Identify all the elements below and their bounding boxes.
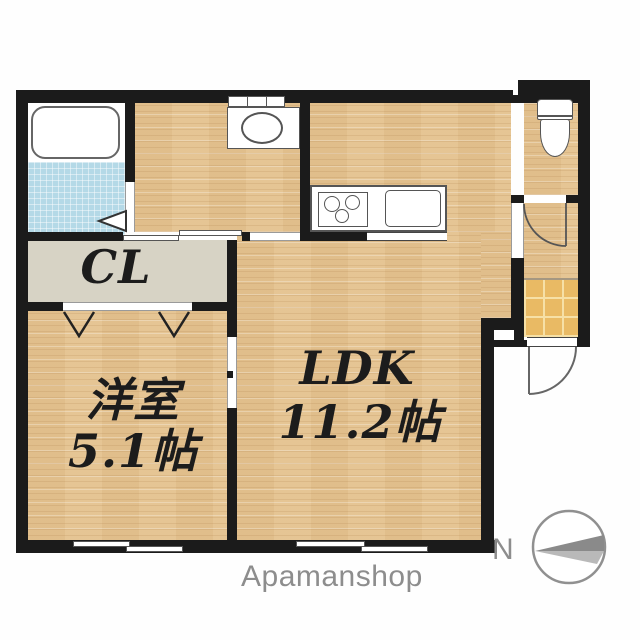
washroom-window-shelf [228,96,285,107]
toilet-door-opening [526,195,566,203]
compass-needle-dark [535,535,604,551]
wall-segment [192,302,227,311]
brand-label: Apamanshop [241,560,423,594]
ldk-window [361,546,428,552]
shelf-divider [266,96,267,107]
wall-segment [125,92,135,182]
ldk-floor-east [481,232,511,318]
entrance-tile-floor [524,280,578,337]
wall-segment [481,318,494,553]
north-label: N [492,533,514,567]
entrance-door-sill [527,337,577,347]
entrance-step-line [524,278,578,280]
compass [533,511,605,583]
wall-segment [300,232,367,241]
wall-segment [227,240,237,302]
kitchen-counter-front [367,232,447,241]
room-label-closet: CL [81,240,152,294]
kitchen-sink [385,190,441,227]
room-size-ldk: 11.2帖 [278,386,441,452]
hallway-ldk-sliding-door [511,203,524,258]
wall-segment [494,340,527,347]
compass-needle-light [535,551,604,564]
washroom-ldk-sliding-door [250,232,300,241]
shelf-divider [247,96,248,107]
washbasin-bowl [241,112,283,144]
wall-segment [566,195,578,203]
wall-segment [28,302,63,311]
bathroom-door-opening [125,182,135,232]
wall-segment [300,92,310,241]
floorplan: LDK 11.2帖 洋室 5.1帖 CL N Apamanshop [0,0,640,640]
washroom-sliding-door-pane [179,230,242,236]
hallway-floor [524,203,578,280]
bathtub [31,106,120,159]
room-size-western: 5.1帖 [68,415,198,481]
wall-segment [513,95,518,103]
western-room-window [73,541,130,547]
wall-segment [16,90,28,553]
sliding-door-stile [227,371,233,378]
entrance-door-arc [529,347,576,394]
stove-burner [345,195,360,210]
wall-segment [577,337,590,347]
wall-segment [242,232,250,241]
wall-segment [578,80,590,347]
ldk-window [296,541,365,547]
closet-door-opening [63,302,192,311]
bathroom-floor [28,162,125,235]
toilet-tank [537,99,573,120]
stove-burner [335,209,349,223]
western-room-window [126,546,183,552]
toilet-tank-line [538,115,572,117]
wall-niche [494,330,514,340]
